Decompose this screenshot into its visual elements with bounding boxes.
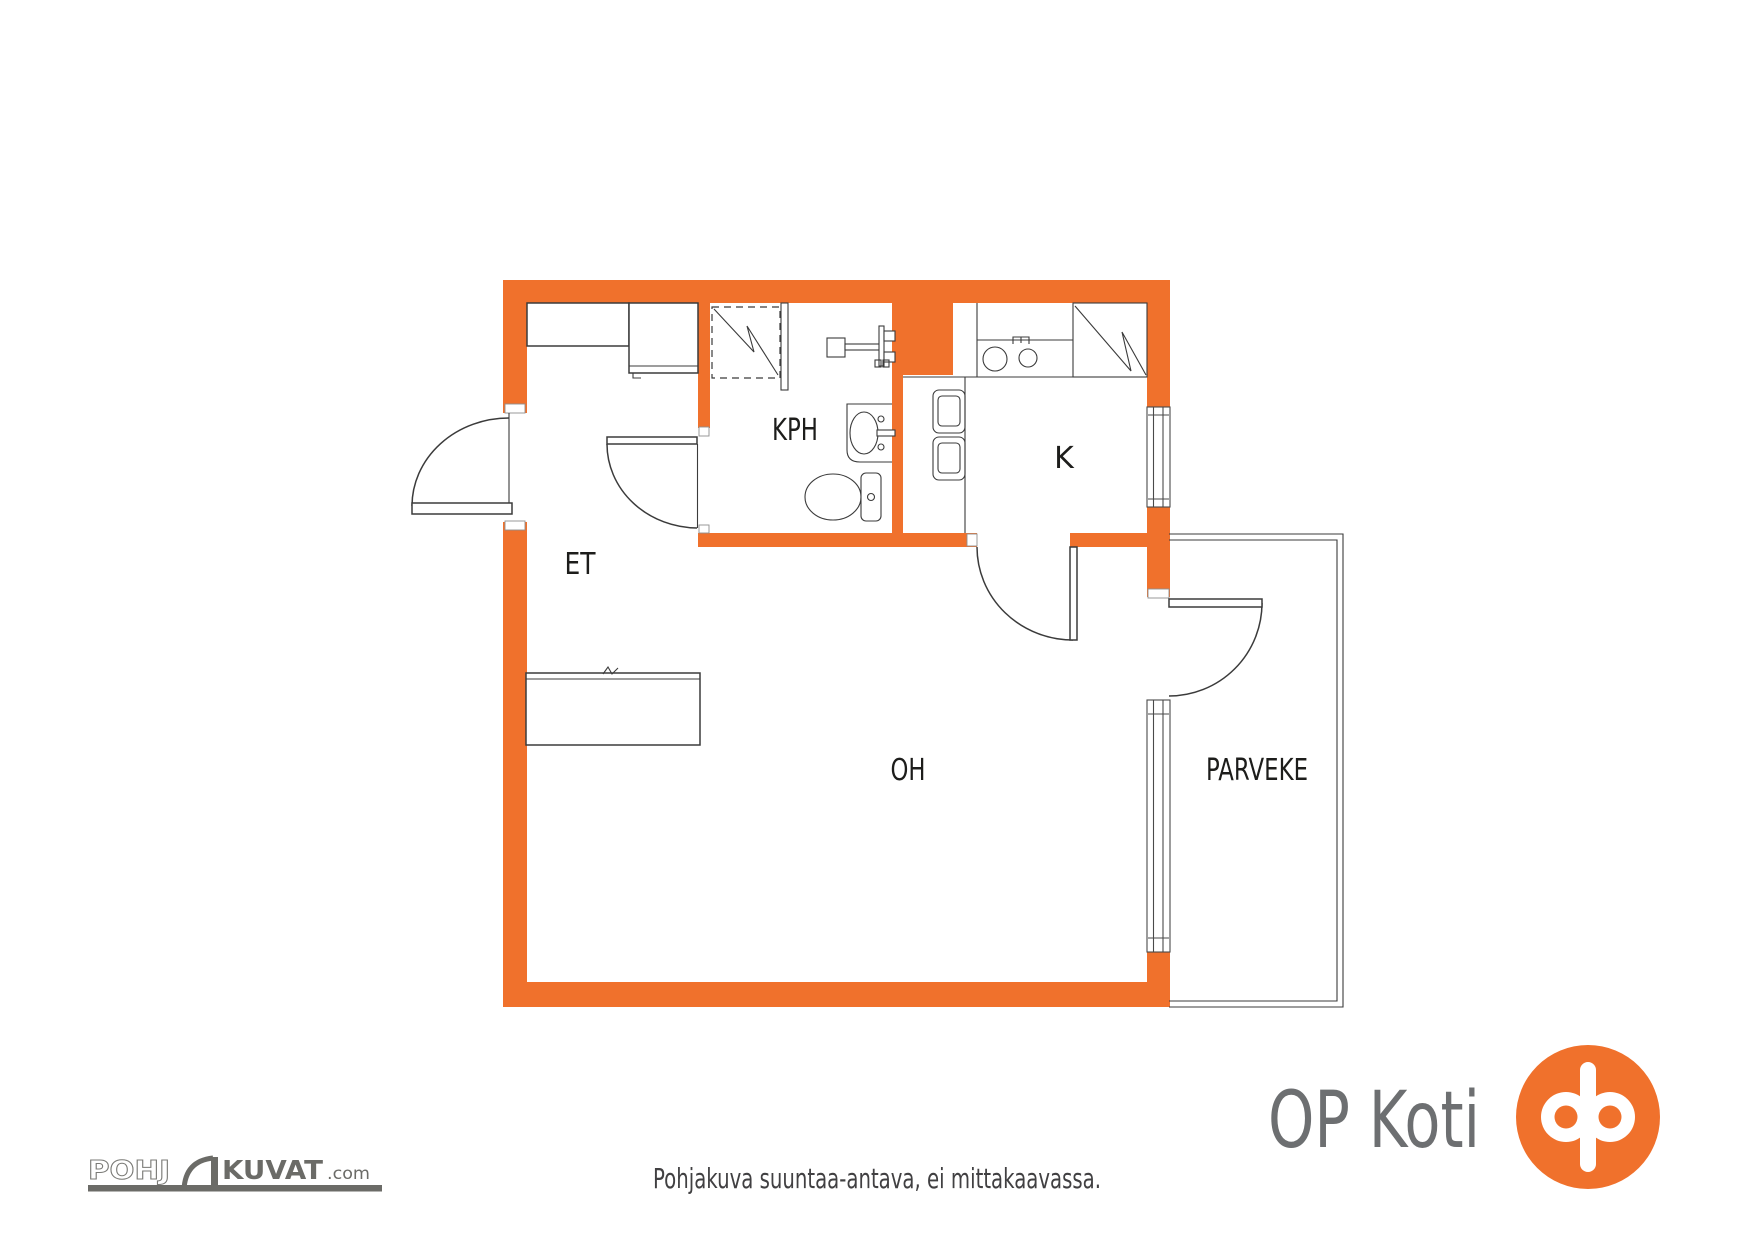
balcony-door-icon [1169, 599, 1262, 696]
floor-plan: ET KPH K OH PARVEKE Pohjakuva suuntaa-an… [0, 0, 1754, 1241]
sideboard-icon [526, 667, 700, 745]
shower-screen [781, 303, 788, 390]
disclaimer-text: Pohjakuva suuntaa-antava, ei mittakaavas… [653, 1162, 1101, 1195]
wall-right-bottom [1147, 952, 1170, 1007]
sink-icon [847, 360, 895, 462]
wall-south-kph-k [698, 533, 977, 547]
notch-kph-door-top [699, 427, 709, 436]
interior-door-icon [607, 437, 698, 528]
room-label-oh: OH [891, 753, 926, 788]
op-koti-logo: OP Koti [1268, 1045, 1660, 1189]
room-label-parveke: PARVEKE [1206, 753, 1308, 788]
entrance-door-icon [412, 413, 512, 514]
pohjakuvat-text-right: KUVAT [222, 1156, 323, 1186]
notch-kitchen-door-left [967, 534, 977, 546]
op-logo-icon [1516, 1045, 1660, 1189]
op-koti-text: OP Koti [1268, 1076, 1480, 1166]
walls [503, 280, 1170, 1007]
notch-kph-door-bottom [699, 525, 709, 533]
pohjakuvat-logo: POHJ KUVAT .com [88, 1156, 382, 1192]
wall-right-mid [1147, 507, 1170, 597]
toilet-icon [805, 473, 881, 521]
fridge-icon [1073, 303, 1147, 377]
wall-kph-east [892, 375, 903, 533]
wall-right-top [1147, 280, 1170, 407]
wall-kph-west [698, 303, 710, 428]
pohjakuvat-text-tld: .com [327, 1164, 370, 1184]
wall-top [503, 280, 1170, 303]
room-label-kph: KPH [772, 413, 818, 448]
notch-entrance-top [505, 404, 525, 413]
wall-bottom [503, 982, 1167, 1007]
notch-entrance-bottom [505, 521, 525, 530]
floor-plan-page: ET KPH K OH PARVEKE Pohjakuva suuntaa-an… [0, 0, 1754, 1241]
wall-south-right [1070, 533, 1170, 547]
room-label-k: K [1054, 441, 1075, 476]
shower-icon [712, 303, 788, 390]
kitchen-sink-icon [933, 377, 965, 533]
wardrobe-icon [527, 303, 698, 378]
living-room-window-icon [1147, 700, 1170, 952]
room-label-et: ET [565, 547, 597, 582]
pohjakuvat-text-left: POHJ [88, 1156, 170, 1186]
wall-duct-block [892, 303, 953, 375]
wall-left-lower [503, 522, 527, 1007]
notch-balcony-door-top [1148, 589, 1169, 598]
kitchen-window-icon [1147, 407, 1170, 507]
wall-left-upper [503, 280, 527, 413]
kitchen-door-icon [977, 547, 1077, 640]
